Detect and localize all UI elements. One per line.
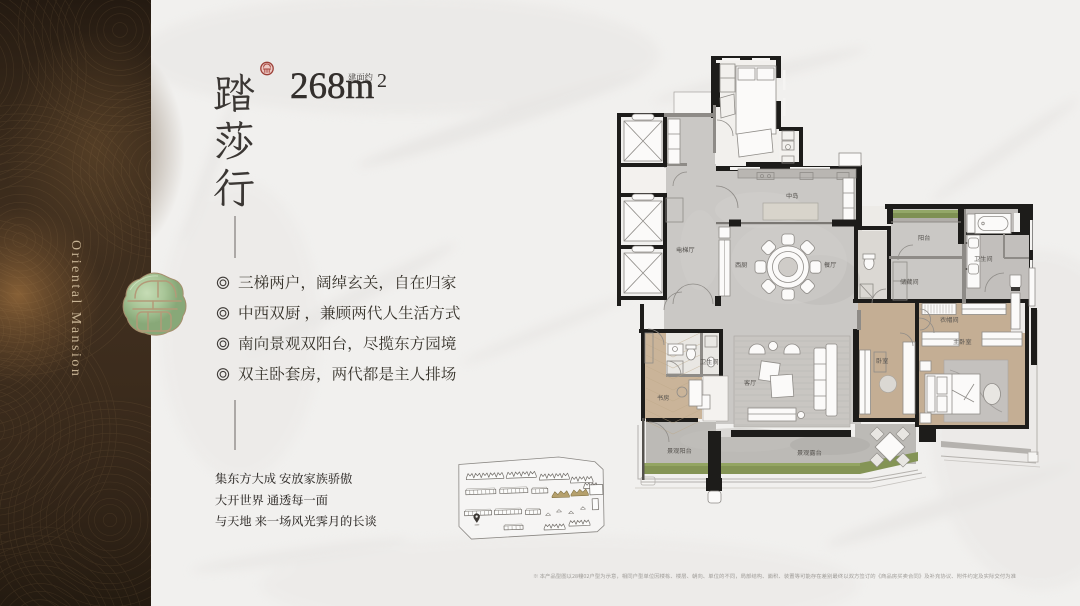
svg-text:268m: 268m bbox=[290, 66, 375, 107]
svg-text:Oriental Mansion: Oriental Mansion bbox=[68, 240, 83, 378]
svg-text:2: 2 bbox=[377, 70, 387, 92]
